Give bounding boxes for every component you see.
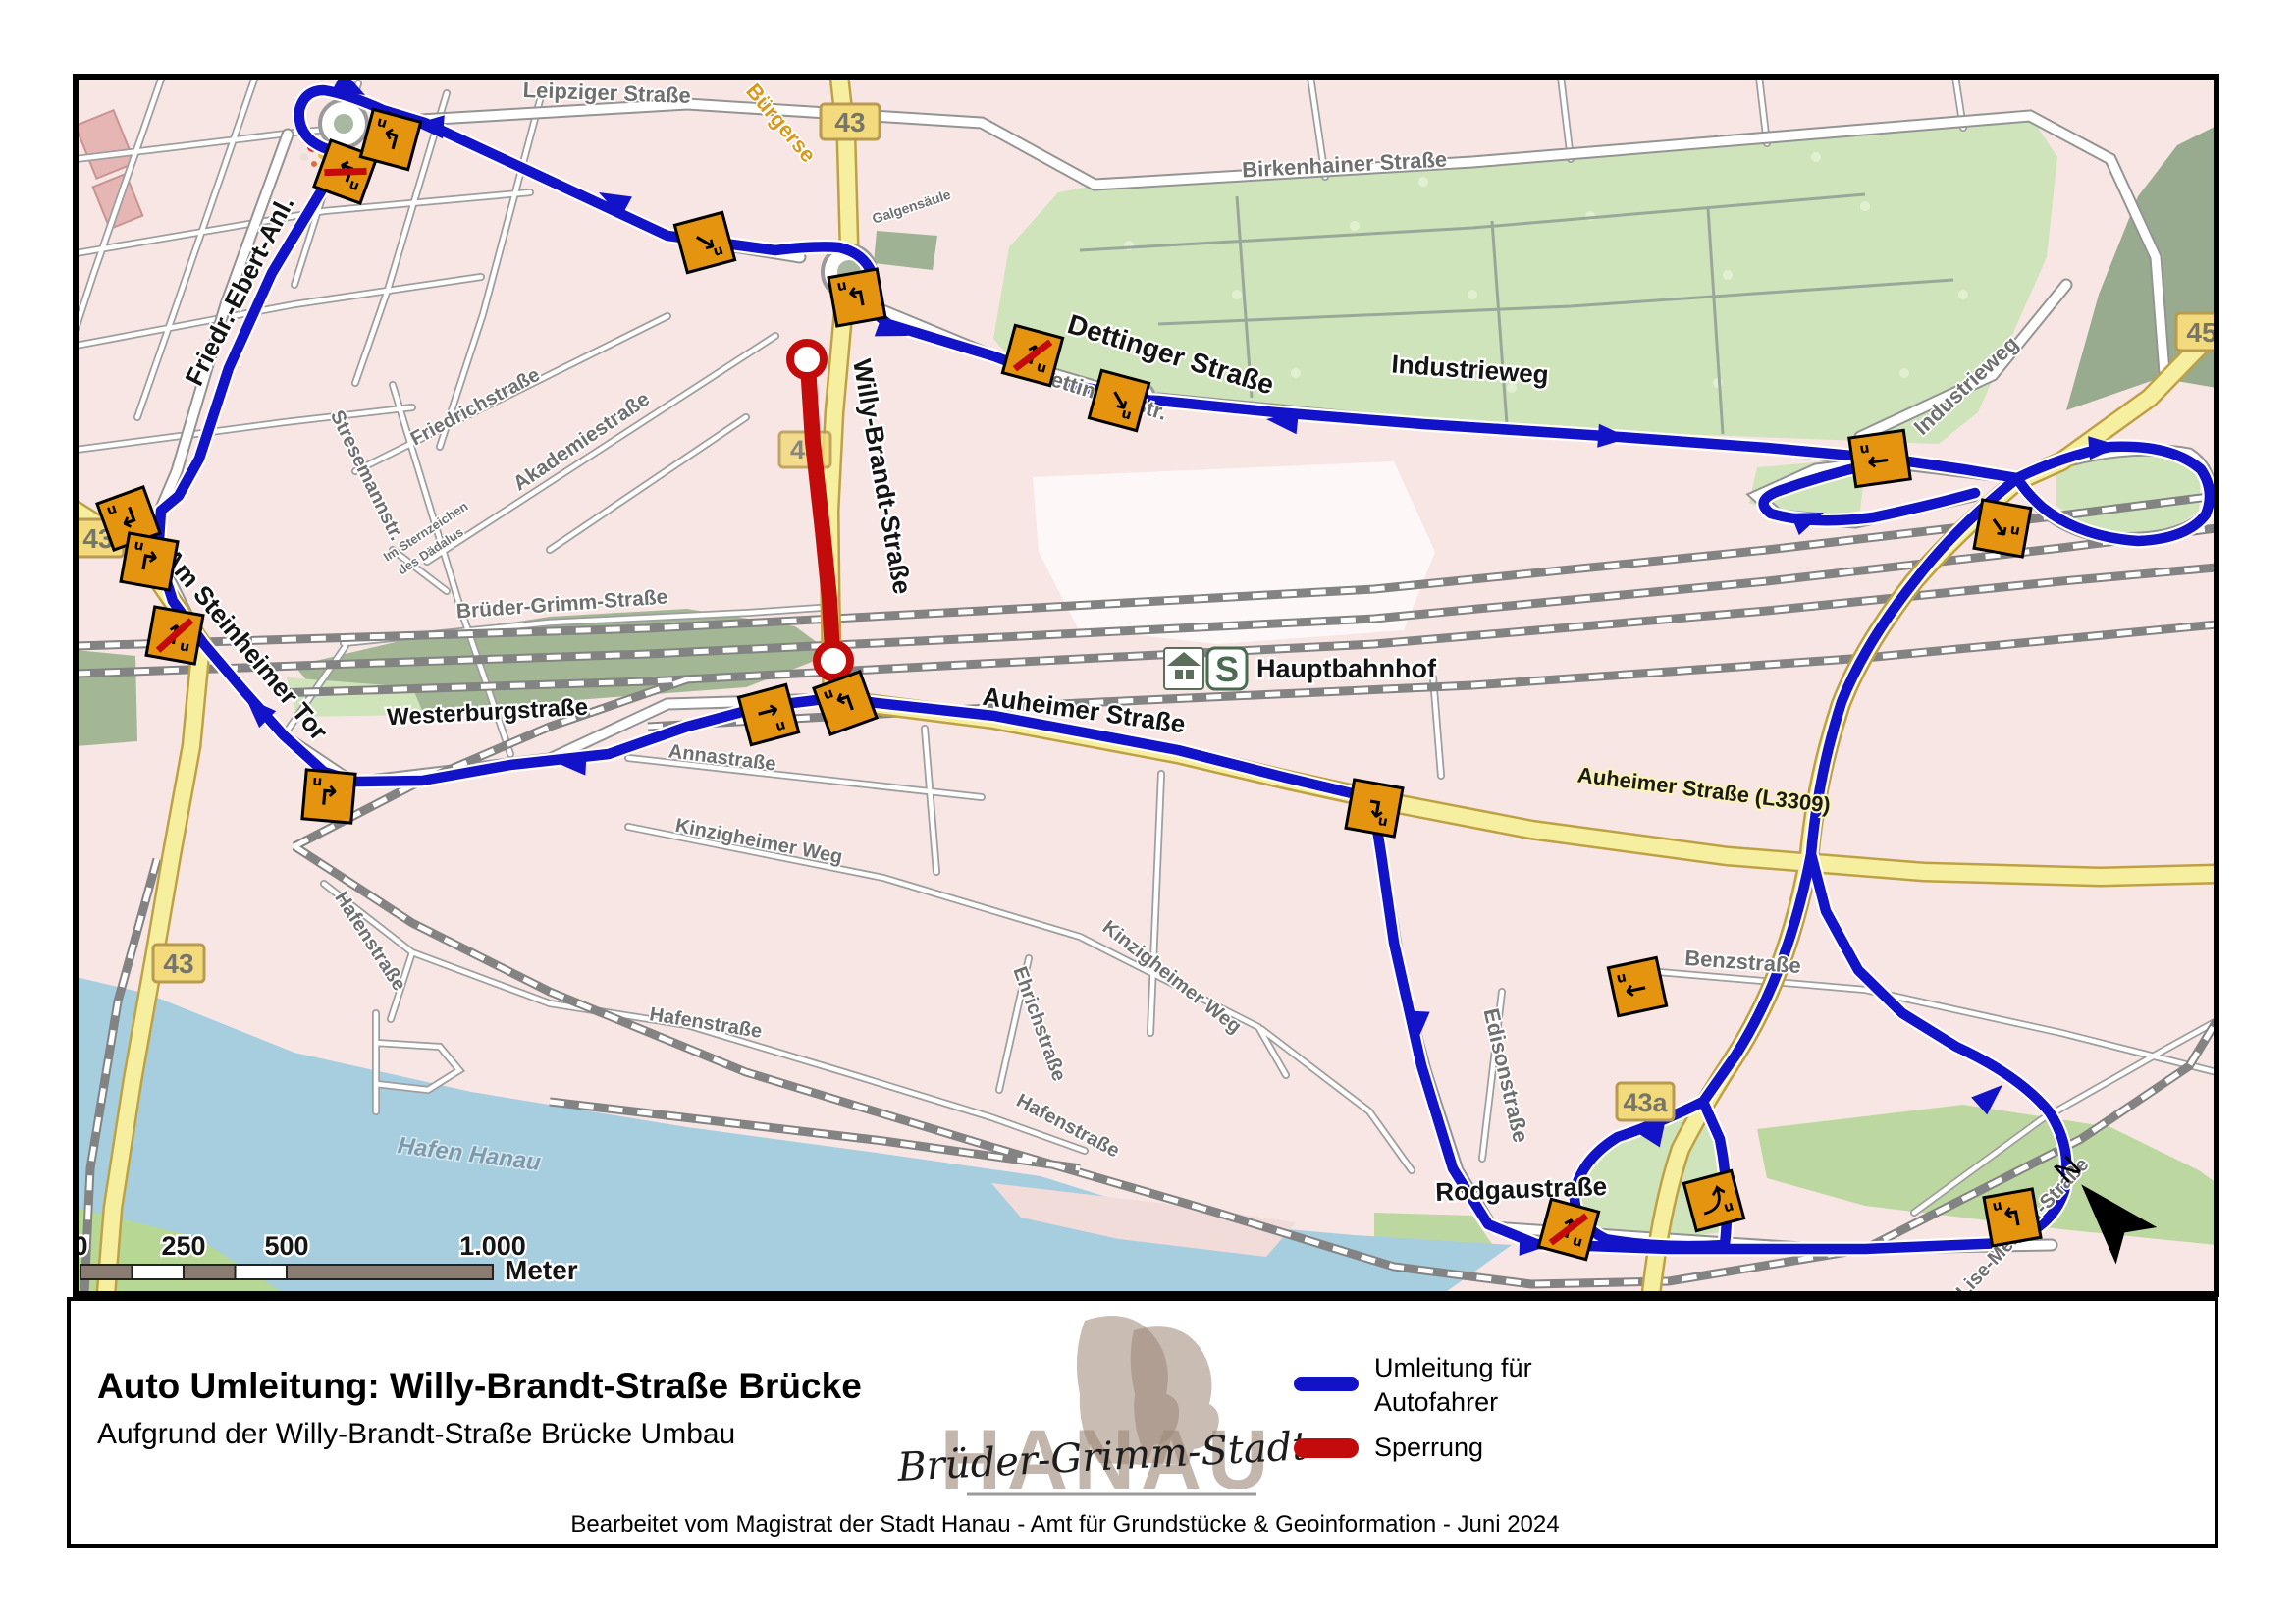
detour-sign: ↑u [1002,325,1062,385]
svg-text:u: u [312,774,323,790]
legend-detour-swatch [1294,1377,1359,1391]
svg-text:43: 43 [163,948,193,979]
detour-sign: ←u [1849,430,1910,486]
sbahn-icon: S [1207,648,1247,689]
road-shield-43-north: 43 [821,104,880,139]
title-panel: Auto Umleitung: Willy-Brandt-Straße Brüc… [69,1299,2216,1546]
detour-sign: →u [738,684,798,744]
detour-sign: ←u [1608,957,1666,1015]
svg-text:S: S [1215,649,1239,689]
legend-detour-label-line2: Autofahrer [1374,1387,1498,1417]
station-house-icon [1164,648,1203,689]
footer-credit: Bearbeitet vom Magistrat der Stadt Hanau… [570,1511,1559,1538]
closure-endpoint-icon [790,343,824,376]
legend-closure-label: Sperrung [1374,1433,1483,1462]
scale-unit-label: Meter [505,1255,578,1285]
legend-closure-swatch [1294,1438,1359,1458]
detour-sign: ↘u [674,212,734,272]
detour-sign: ↱u [302,770,355,823]
road-shield-45: 45 [2176,313,2227,351]
detour-sign: ↘u [1089,370,1148,430]
detour-sign: ↱u [121,533,178,590]
svg-text:43: 43 [834,107,865,137]
detour-sign: ⤴u [1683,1170,1743,1230]
map-area: 43 [73,70,2227,1302]
detour-sign: ↰u [828,269,885,326]
detour-sign: ↰u [360,109,420,169]
road-shield-43-southwest: 43 [153,945,204,982]
detour-map-page: 43 [0,0,2296,1624]
svg-text:43a: 43a [1623,1088,1668,1117]
hauptbahnhof-label: Hauptbahnhof [1256,654,1437,683]
detour-sign: ↴u [1346,780,1403,837]
street-label: Rodgaustraße [1435,1171,1608,1207]
detour-sign: ↑u [146,607,203,664]
page-title: Auto Umleitung: Willy-Brandt-Straße Brüc… [97,1366,862,1406]
scale-tick-label: 500 [264,1231,308,1261]
road-shield-43a: 43a [1617,1083,1674,1120]
scale-tick-label: 250 [161,1231,205,1261]
detour-sign: ↑u [1538,1199,1598,1259]
map-canvas: 43 [0,0,2296,1624]
legend-detour-label-line1: Umleitung für [1374,1353,1532,1382]
detour-sign: ↰u [1984,1189,2041,1246]
svg-text:45: 45 [2186,317,2216,348]
closure-endpoint-icon [817,644,850,677]
page-subtitle: Aufgrund der Willy-Brandt-Straße Brücke … [97,1418,735,1450]
detour-sign: ↘u [1974,500,2031,557]
